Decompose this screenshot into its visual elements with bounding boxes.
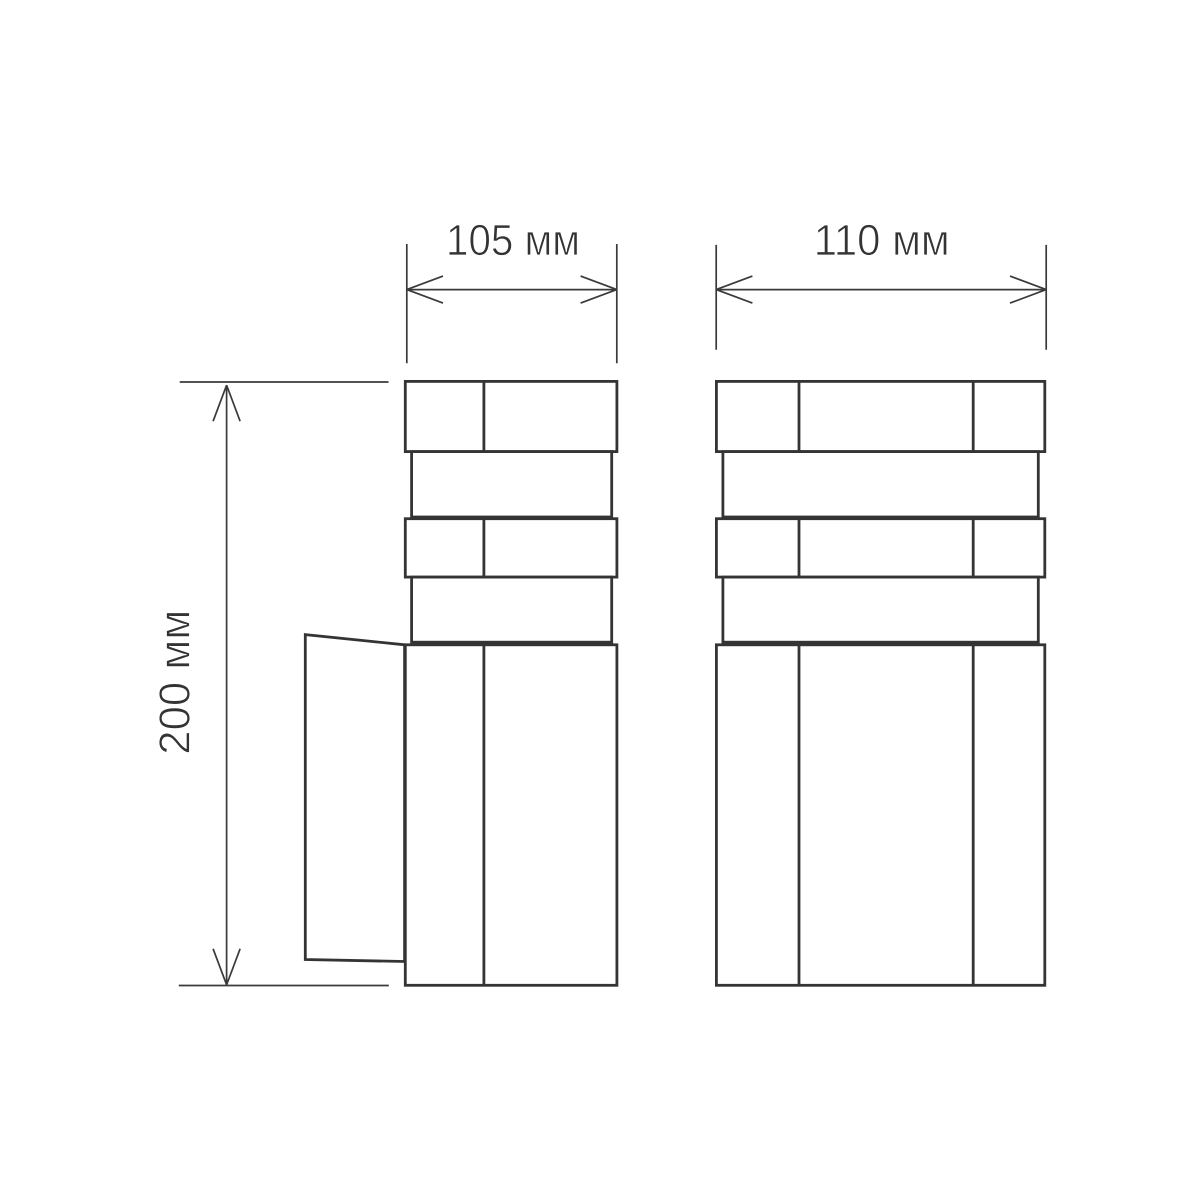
svg-text:200 мм: 200 мм [151,610,200,755]
svg-text:105 мм: 105 мм [446,216,580,265]
svg-text:110 мм: 110 мм [814,216,950,265]
